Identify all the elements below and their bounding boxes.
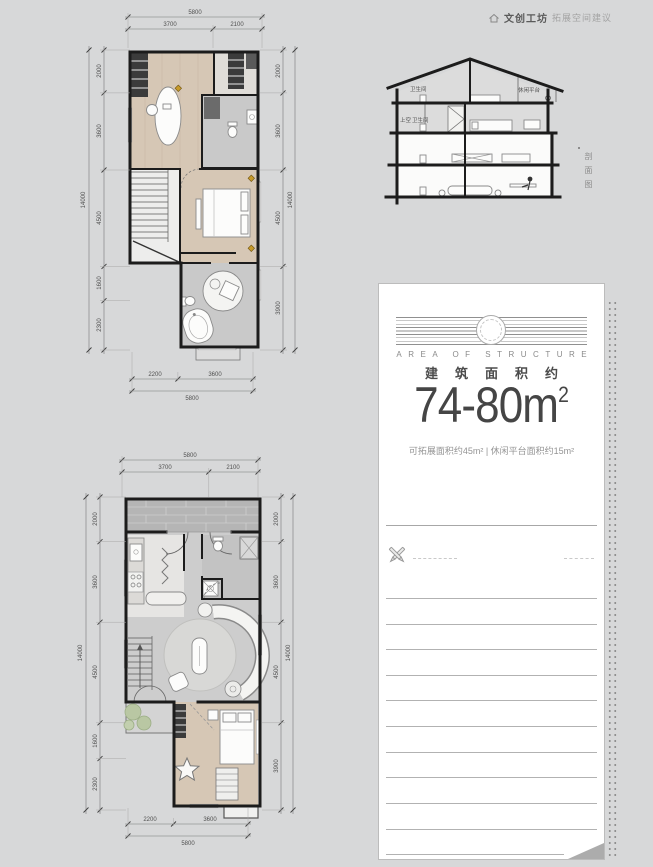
note-line [386,829,597,830]
dim-label: 3700 [163,22,177,28]
dim-label: 3600 [93,575,99,589]
info-card: AREA OF STRUCTURE 建筑面积约 74-80m2 可拓展面积约45… [378,283,605,860]
dim-label: 5800 [183,453,197,459]
card-title-en: AREA OF STRUCTURE [379,350,604,359]
floor-plan-upper: 5800 3700 2100 14000 2000 3600 4500 1600… [75,5,330,405]
dim-label: 2000 [93,512,99,526]
signature-dash-right [564,558,594,559]
note-line [386,777,597,778]
label-platform: 休闲平台 [518,86,541,94]
card-divider [386,525,597,526]
dim-label: 2000 [274,512,280,526]
dim-label: 2200 [143,817,157,823]
note-line [386,624,597,625]
dim-label: 4500 [93,665,99,679]
building-section-diagram: 卫生间 休闲平台 上空 卫生间 [385,50,595,210]
note-line [386,675,597,676]
dim-label: 2300 [97,318,103,332]
label-bath-top: 卫生间 [410,85,427,93]
dim-label: 2100 [230,22,244,28]
section-side-label: 剖面图 [583,152,594,194]
dim-label: 3600 [208,372,222,378]
note-line [386,649,597,650]
label-void: 上空 [400,116,412,124]
dim-label: 14000 [81,191,87,208]
dim-label: 2100 [226,465,240,471]
crossed-pencils-icon [386,544,408,566]
area-superscript: 2 [558,382,569,407]
area-number: 74-80m [414,377,558,433]
dim-label: 4500 [97,211,103,225]
dim-label: 3900 [276,301,282,315]
brand-name: 文创工坊 [504,10,548,25]
dim-label: 3600 [274,575,280,589]
floor-plan-lower: 5800 3700 2100 14000 2000 3600 4500 1600… [70,445,330,865]
brand-subtitle: 拓展空间建议 [552,11,612,24]
dim-label: 3700 [158,465,172,471]
perforation-dots [607,300,618,858]
signature-dash-left [413,558,457,559]
dim-label: 3600 [203,817,217,823]
area-note: 可拓展面积约45m² | 休闲平台面积约15m² [379,444,604,457]
note-line [386,854,564,855]
dim-label: 5800 [188,10,202,16]
dim-label: 2300 [93,777,99,791]
dim-label: 3600 [97,124,103,138]
label-bath-mid: 卫生间 [412,116,429,124]
header: 文创工坊 拓展空间建议 [488,10,612,25]
dim-label: 14000 [288,191,294,208]
dim-label: 2000 [276,64,282,78]
note-line [386,598,597,599]
dim-label: 5800 [185,396,199,402]
dim-label: 14000 [286,644,292,661]
dim-label: 2200 [148,372,162,378]
dim-label: 4500 [276,211,282,225]
dim-label: 1600 [97,276,103,290]
note-line [386,803,597,804]
dim-label: 3600 [276,124,282,138]
dim-label: 4500 [274,665,280,679]
note-line [386,726,597,727]
dim-label: 1600 [93,734,99,748]
dim-label: 14000 [78,644,84,661]
note-line [386,752,597,753]
house-icon [488,12,500,24]
brochure-page: 文创工坊 拓展空间建议 [0,0,653,867]
side-label-dot [578,147,580,149]
area-value: 74-80m2 [393,380,591,430]
dim-label: 2000 [97,64,103,78]
dim-label: 5800 [181,841,195,847]
folded-corner [568,843,604,859]
dim-label: 3900 [274,759,280,773]
note-line [386,700,597,701]
seal-stamp-icon [476,315,506,345]
